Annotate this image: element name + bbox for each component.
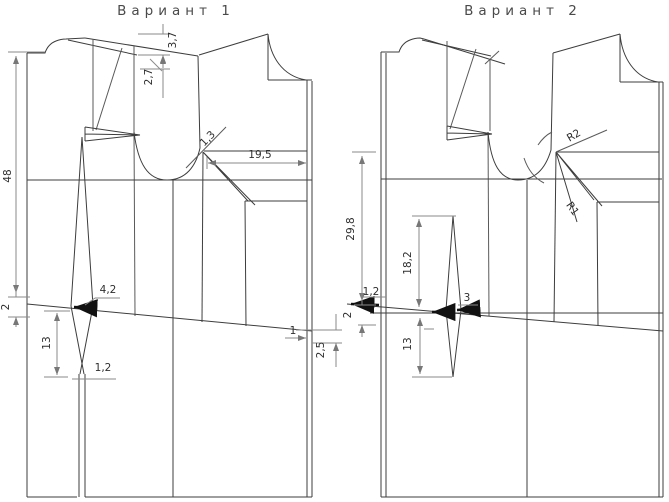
v1-waist-dart-lower (71, 306, 93, 374)
v1-back-neckline (27, 38, 85, 53)
v1-slanted-waistline (27, 304, 312, 331)
v2-slanted-waistline (347, 304, 663, 331)
v2-armhole-curve (488, 53, 553, 180)
v2-radius-arcs (524, 132, 552, 183)
v1-front-neckline-curve (268, 34, 306, 80)
v1-dart-extension-lines (79, 374, 85, 497)
variant2-pattern (347, 34, 663, 497)
variant2-dimensions (352, 152, 478, 377)
v2-center-back-lines (381, 52, 386, 497)
v1-dim-42-leader (85, 298, 120, 305)
v2-label-1-2: 1,2 (363, 287, 380, 298)
v2-front-panel-line (597, 202, 659, 325)
v1-side-dart-fan (203, 152, 255, 205)
v2-label-29-8: 29,8 (346, 217, 357, 240)
v2-shoulder-cross-tick (485, 51, 499, 64)
variant1-title: Вариант 1 (117, 3, 235, 19)
v1-label-48: 48 (3, 169, 14, 182)
v2-back-shoulder-line (422, 40, 491, 56)
v1-side-seam-front (202, 152, 203, 322)
v1-label-2-7: 2,7 (144, 69, 155, 86)
v2-back-neckline (381, 38, 424, 52)
v2-dim-13-ticks (412, 329, 452, 377)
variant2-title: Вариант 2 (464, 3, 582, 19)
v1-label-4-2: 4,2 (100, 285, 117, 296)
v2-side-slash-line (488, 132, 489, 316)
v2-label-13: 13 (403, 337, 414, 350)
pattern-diagram: Вариант 1 Вариант 2 48 2 3,7 2,7 1,3 19,… (0, 0, 669, 502)
v1-label-1-2: 1,2 (95, 363, 112, 374)
v2-dart-closure-mark-right (457, 309, 472, 310)
v1-dim-37-ticks (138, 34, 170, 55)
v1-side-slash-line (134, 132, 135, 316)
v1-dart-closure-mark (74, 307, 93, 308)
v1-label-13: 13 (42, 336, 53, 349)
v1-label-1: 1 (290, 326, 297, 337)
variant1-pattern (27, 34, 312, 497)
v1-front-shoulder-line (199, 34, 268, 55)
v2-label-2: 2 (343, 312, 354, 319)
v2-shoulder-extension-line (424, 39, 505, 64)
v2-label-3: 3 (464, 293, 471, 304)
v2-front-shoulder-line (553, 34, 620, 53)
v1-front-panel-line (245, 201, 307, 326)
pattern-drawing-svg (0, 0, 669, 502)
v1-label-19-5: 19,5 (248, 150, 271, 161)
v2-side-seam-front (554, 152, 556, 322)
v2-armhole-dart-sliver (447, 126, 492, 140)
v2-waist-dart (446, 216, 461, 377)
v1-label-2-5: 2,5 (316, 342, 327, 359)
v2-label-18-2: 18,2 (403, 251, 414, 274)
v1-label-3-7: 3,7 (168, 32, 179, 49)
v1-waist-dart-upper (71, 137, 93, 306)
v2-center-front-lines (659, 82, 663, 497)
v1-center-front-lines (307, 80, 312, 497)
v1-back-shoulder-line (68, 40, 137, 55)
v2-front-neckline-curve (620, 34, 658, 82)
v1-label-2: 2 (1, 304, 12, 311)
